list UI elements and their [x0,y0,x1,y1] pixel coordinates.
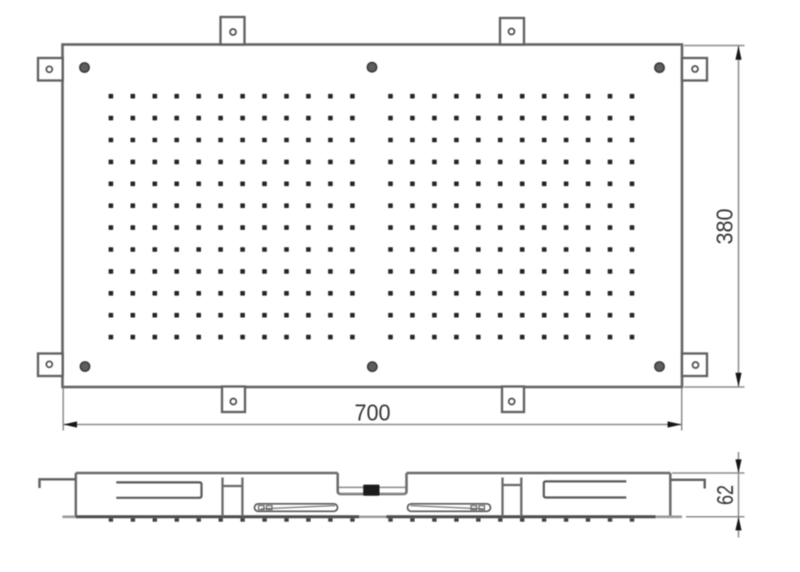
svg-text:380: 380 [711,209,737,245]
svg-text:62: 62 [712,485,738,505]
svg-text:700: 700 [355,399,391,425]
